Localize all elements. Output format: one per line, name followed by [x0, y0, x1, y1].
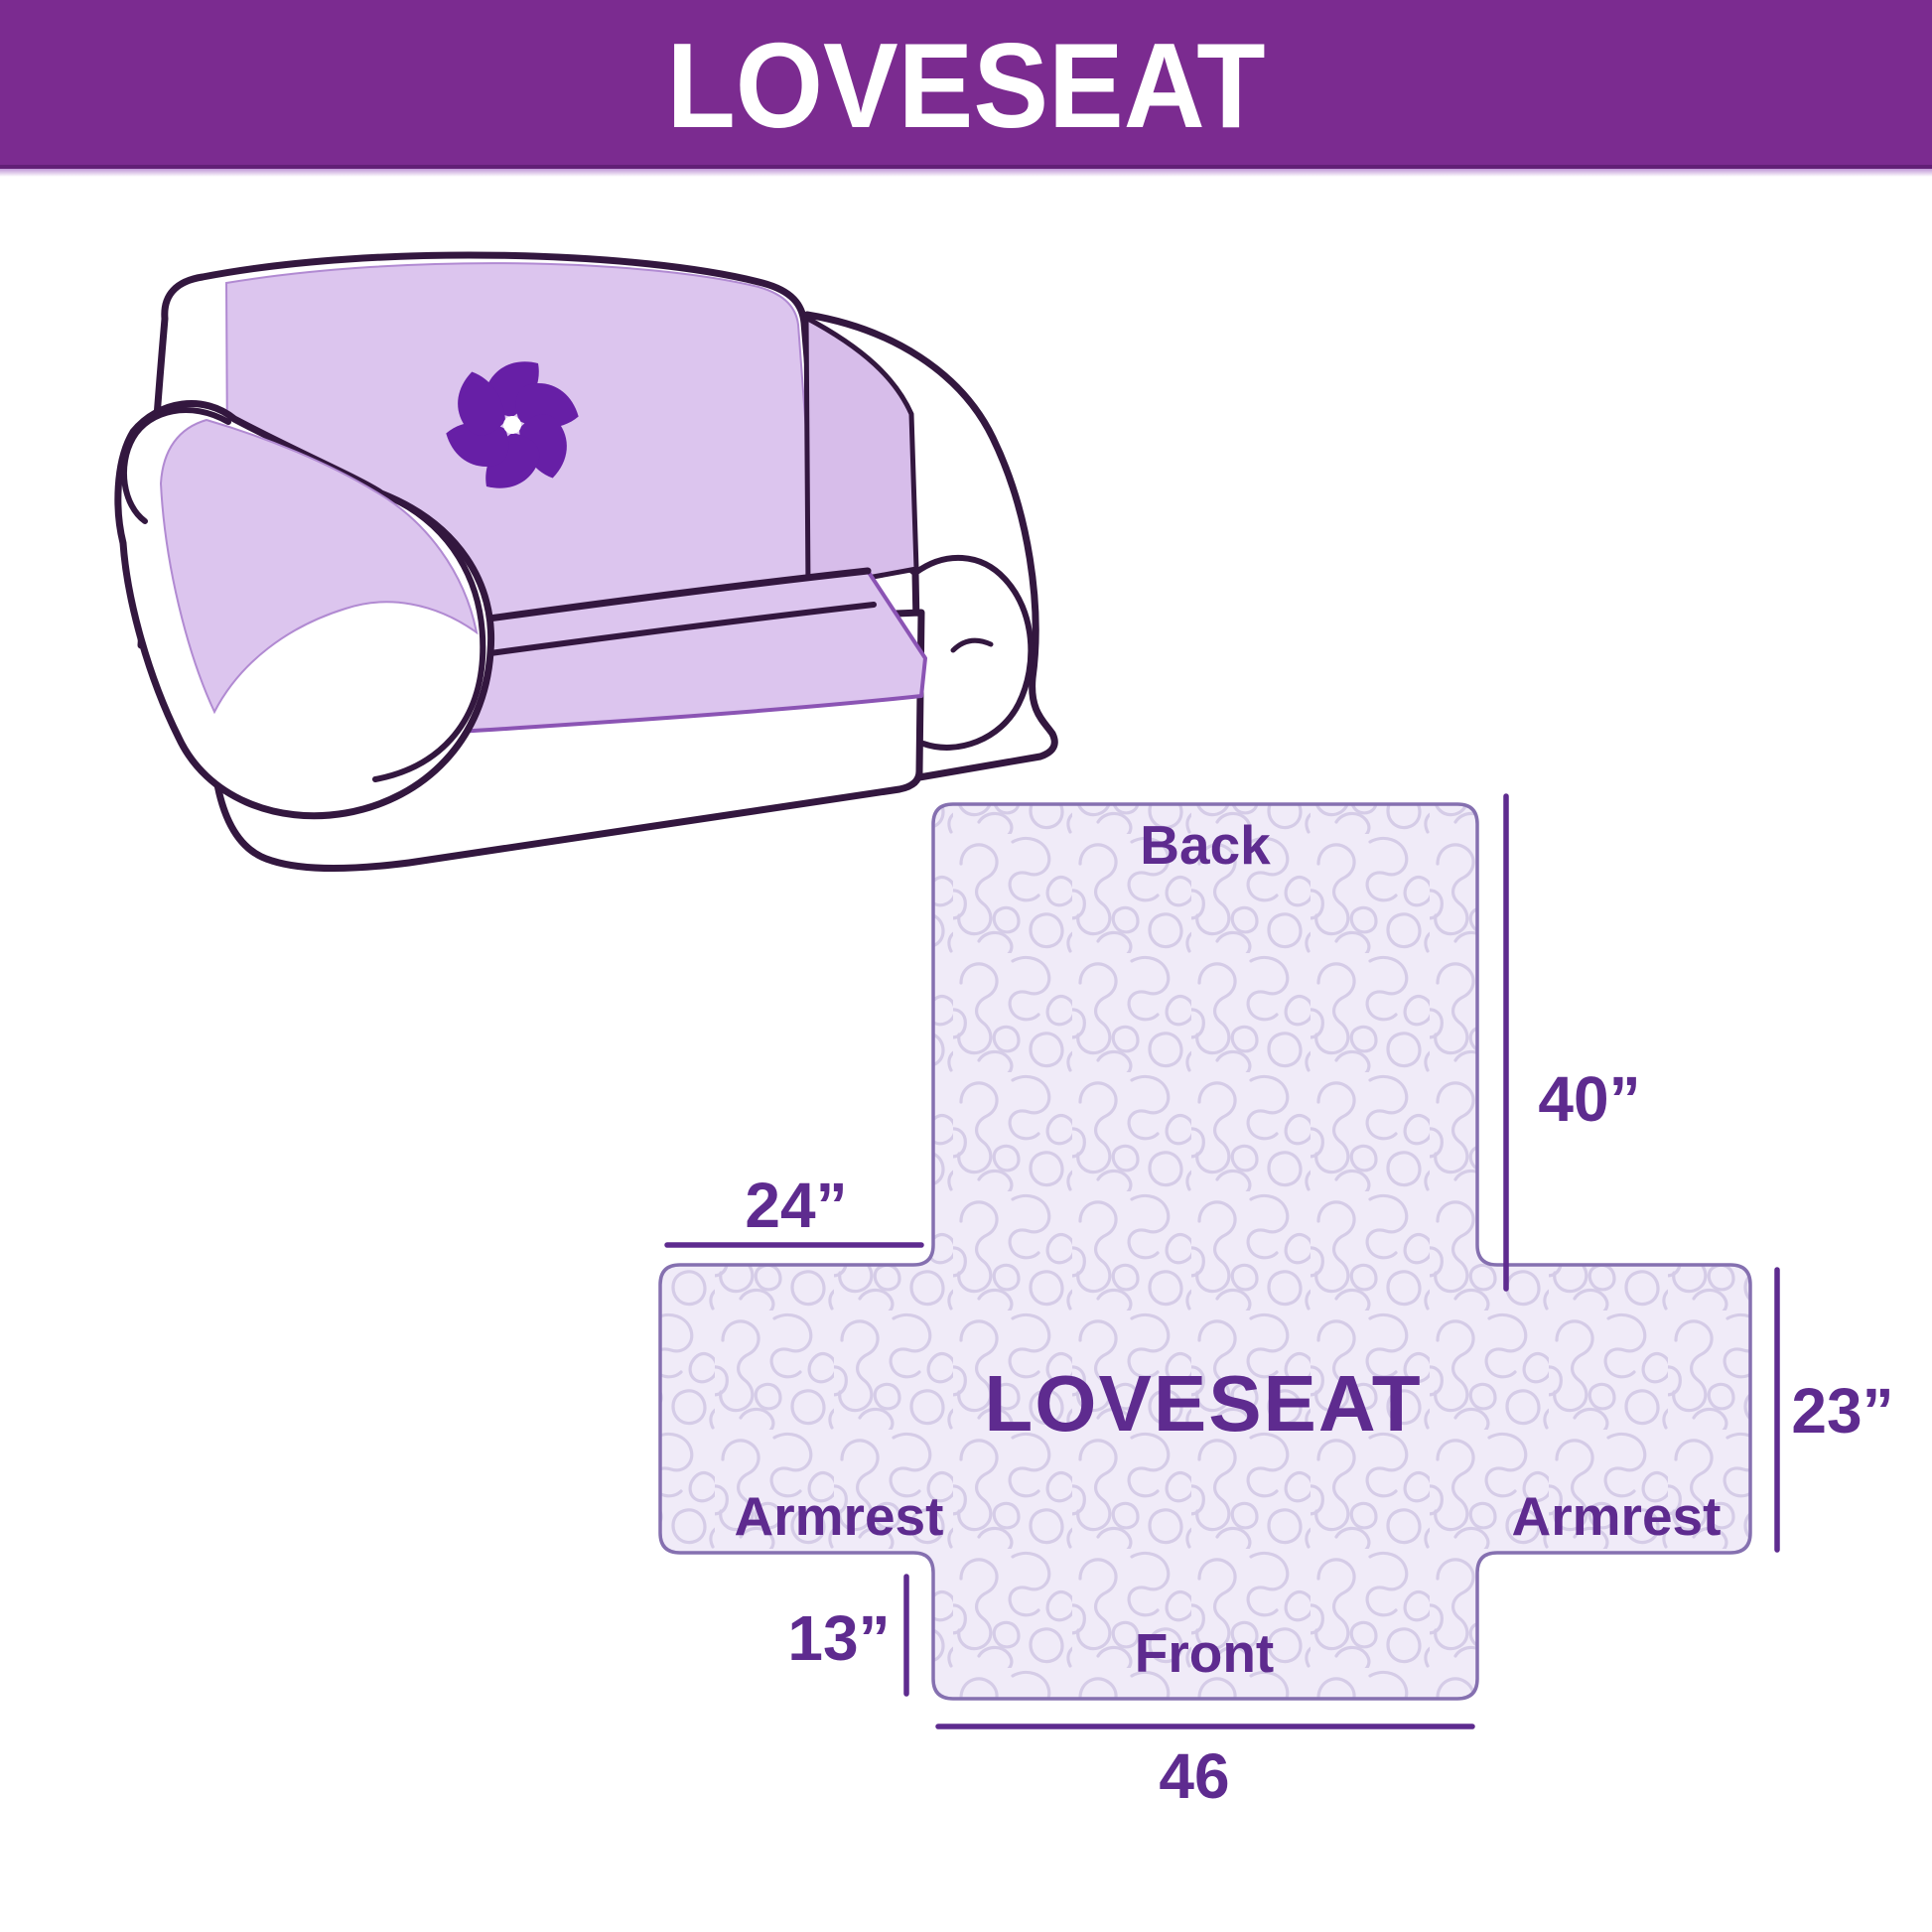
cover-diagram [0, 0, 1932, 1932]
dimension-back-side-width: 24” [745, 1169, 847, 1242]
front-flap-label: Front [1135, 1621, 1275, 1685]
dimension-armrest-height: 23” [1791, 1374, 1893, 1448]
diagram-center-label: LOVESEAT [984, 1358, 1422, 1449]
cover-diagram-shape [660, 804, 1750, 1699]
armrest-right-label: Armrest [1512, 1484, 1722, 1548]
dimension-front-width: 46 [1159, 1739, 1229, 1813]
dimension-back-height: 40” [1538, 1062, 1640, 1136]
back-flap-label: Back [1140, 813, 1270, 877]
dimension-front-skirt: 13” [787, 1601, 890, 1675]
armrest-left-label: Armrest [735, 1484, 944, 1548]
